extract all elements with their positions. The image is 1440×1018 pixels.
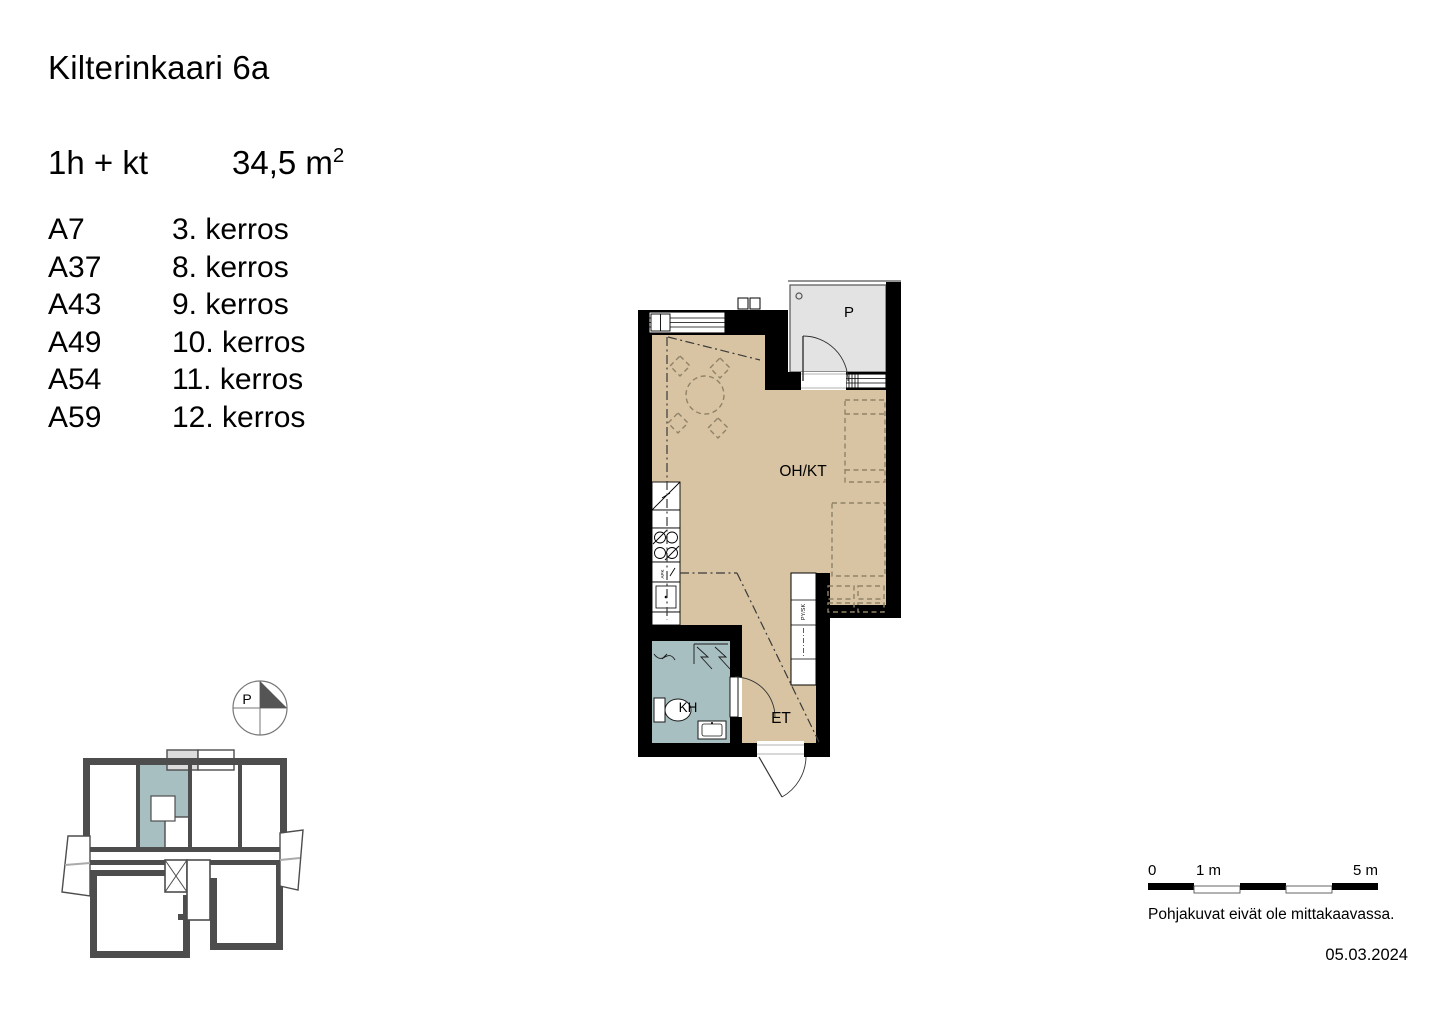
window-top [649,312,725,333]
window-balcony [846,374,886,388]
balcony-floor [790,285,886,372]
utility-cabinet: PY/SK [791,573,816,685]
kitchen-sink-icon [652,582,680,612]
room-label-balcony: P [844,304,854,321]
north-arrow: P [225,673,295,743]
scale-label-0: 0 [1148,862,1156,879]
scale-bar: 0 1 m 5 m [1148,862,1380,902]
kitchen-fixtures: APK [652,482,680,625]
north-label: P [242,691,251,707]
keyplan-elevator-icon [165,860,210,920]
scale-bar-graphic [1148,883,1380,897]
apartment-row: A378. kerros [48,249,305,287]
building-key-plan [58,748,308,968]
apartment-row: A5411. kerros [48,361,305,399]
apartment-row: A4910. kerros [48,324,305,362]
apartment-spec: 1h + kt 34,5 m2 [48,144,468,182]
keyplan-side-balcony [62,836,90,896]
vent-duct-icon [738,298,760,309]
bathroom-sink-icon [698,721,726,739]
apartment-floor-plan: PY/SK APK [620,260,920,820]
room-label-entry: ET [771,710,791,727]
apartment-row: A439. kerros [48,286,305,324]
cabinet-label: PY/SK [801,604,807,621]
room-label-living: OH/KT [779,463,827,480]
disclaimer-text: Pohjakuvat eivät ole mittakaavassa. [1148,906,1394,924]
scale-label-1m: 1 m [1196,862,1221,879]
apartment-type: 1h + kt [48,144,148,181]
date-stamp: 05.03.2024 [1128,946,1408,965]
dishwasher-label: APK [660,569,665,578]
apartment-area: 34,5 m2 [232,144,344,182]
apartment-list: A73. kerros A378. kerros A439. kerros A4… [48,211,305,437]
apartment-row: A73. kerros [48,211,305,249]
apartment-row: A5912. kerros [48,399,305,437]
entrance-door [757,741,806,797]
scale-label-5m: 5 m [1353,862,1378,879]
floorplan-page: Kilterinkaari 6a 1h + kt 34,5 m2 A73. ke… [0,0,1440,1018]
stove-sink-icon [652,528,680,562]
room-label-bathroom: KH [679,700,698,715]
page-title: Kilterinkaari 6a [48,49,269,87]
